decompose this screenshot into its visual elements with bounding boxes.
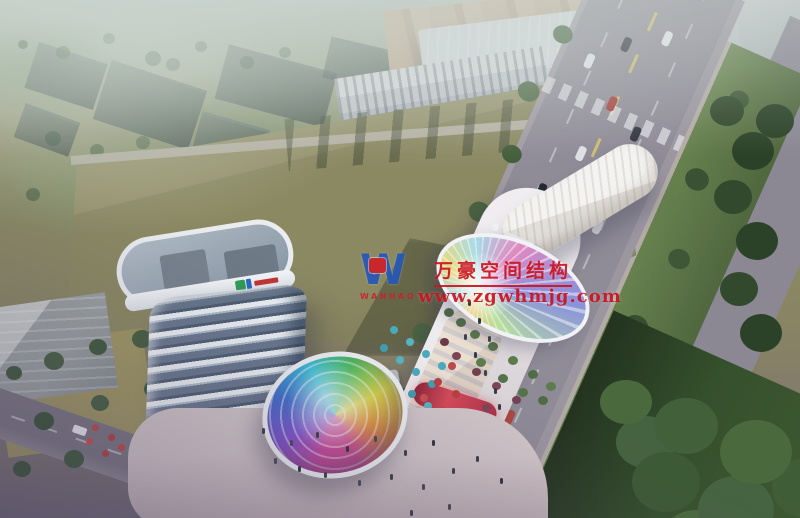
- wanhao-logo-badge: [369, 258, 386, 273]
- aerial-rendering-scene: 万达广场: [0, 0, 800, 518]
- tree-cluster: [600, 380, 652, 424]
- white-umbrellas: [492, 224, 499, 231]
- pedestrians: [262, 428, 265, 434]
- warehouse-building: [0, 292, 118, 403]
- watermark-company-name: 万豪空间结构: [434, 256, 572, 287]
- watermark: W WANHAO 万豪空间结构 www.zgwhmjg.com: [352, 250, 602, 322]
- white-car: [72, 424, 88, 436]
- wanhao-logo: W WANHAO: [360, 252, 416, 304]
- dark-cars: [620, 36, 633, 53]
- tree-cluster: [710, 96, 744, 126]
- red-umbrellas: [92, 424, 99, 431]
- tree-cluster: [6, 366, 22, 380]
- tree-cluster: [18, 40, 28, 49]
- terrace-planting: [470, 330, 480, 339]
- logo-text-bar: [254, 277, 278, 286]
- wanhao-logo-text: WANHAO: [360, 292, 416, 301]
- terrace-planting: [452, 352, 461, 360]
- red-umbrellas: [448, 362, 456, 370]
- teal-umbrellas: [390, 326, 398, 334]
- logo-mark-blue: [246, 278, 253, 289]
- watermark-url: www.zgwhmjg.com: [418, 286, 622, 307]
